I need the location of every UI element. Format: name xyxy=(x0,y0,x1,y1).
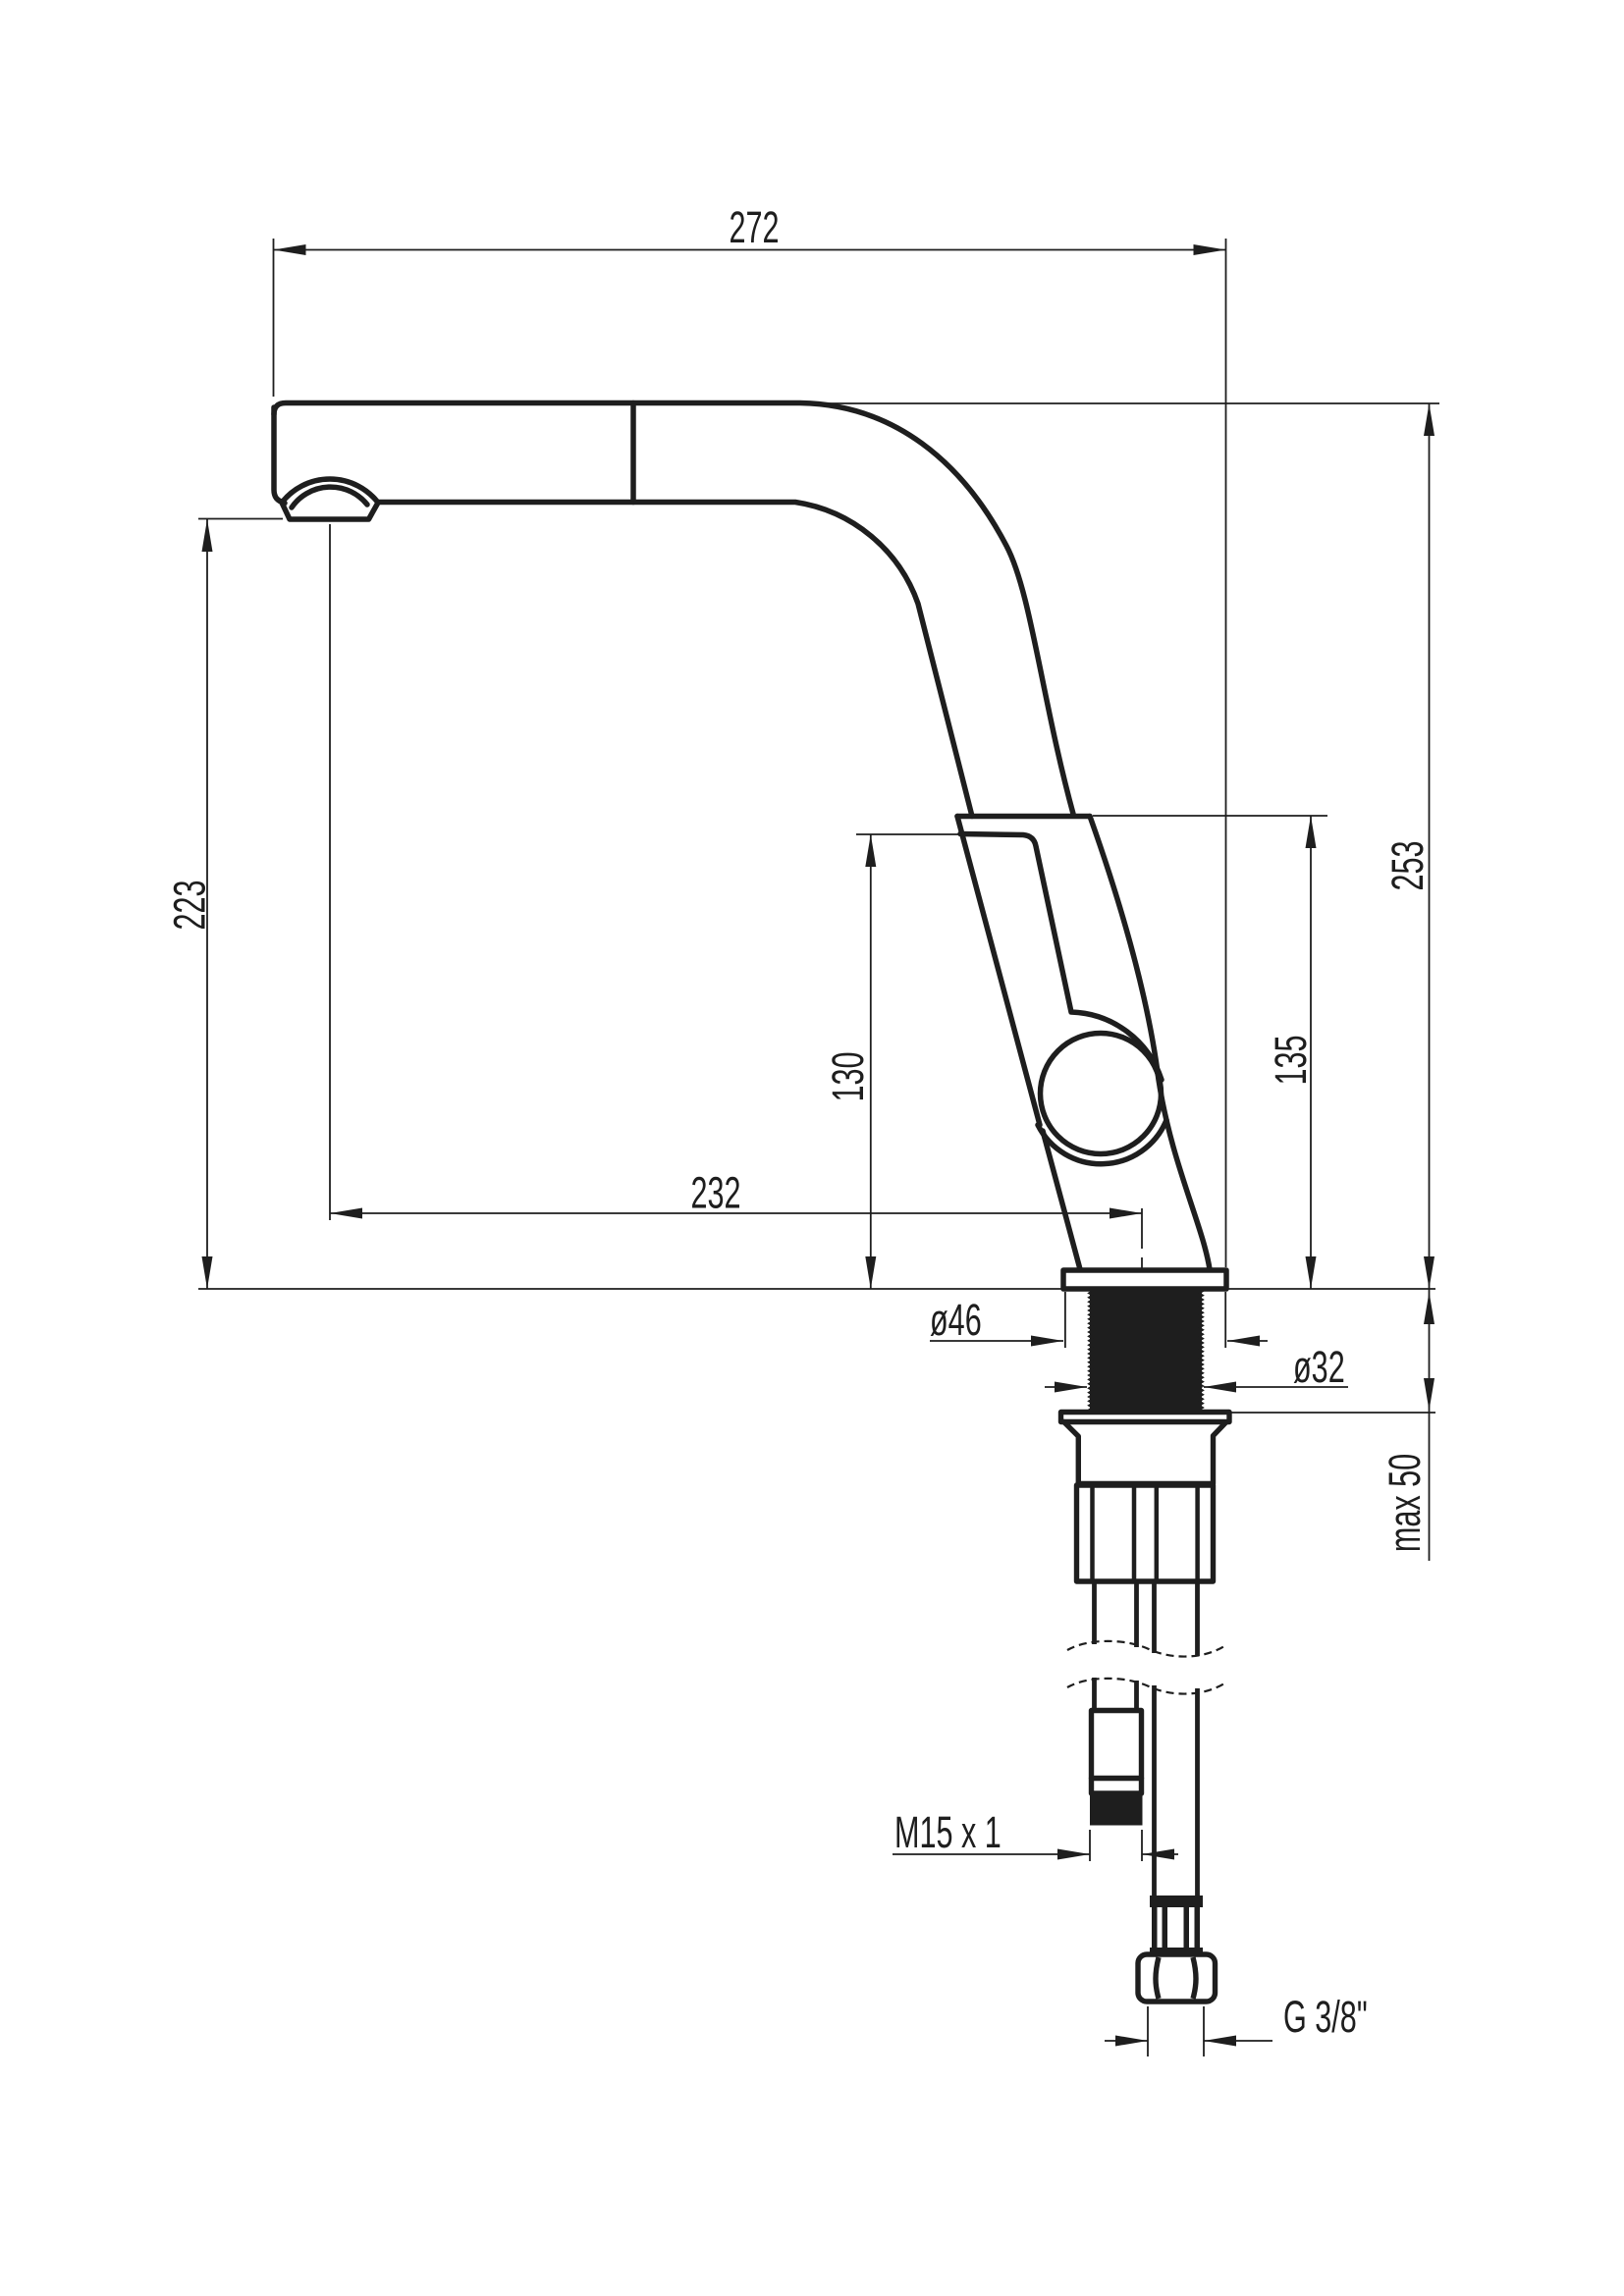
svg-text:max 50: max 50 xyxy=(1380,1454,1430,1552)
svg-text:M15 x 1: M15 x 1 xyxy=(894,1808,1001,1857)
svg-text:130: 130 xyxy=(824,1051,873,1101)
svg-text:272: 272 xyxy=(729,203,779,252)
svg-text:223: 223 xyxy=(166,880,215,930)
svg-text:ø32: ø32 xyxy=(1293,1343,1345,1392)
svg-text:232: 232 xyxy=(690,1169,740,1218)
svg-text:135: 135 xyxy=(1267,1035,1316,1085)
svg-text:ø46: ø46 xyxy=(930,1296,982,1345)
svg-text:253: 253 xyxy=(1383,840,1433,890)
svg-text:G 3/8": G 3/8" xyxy=(1283,1993,1368,2042)
